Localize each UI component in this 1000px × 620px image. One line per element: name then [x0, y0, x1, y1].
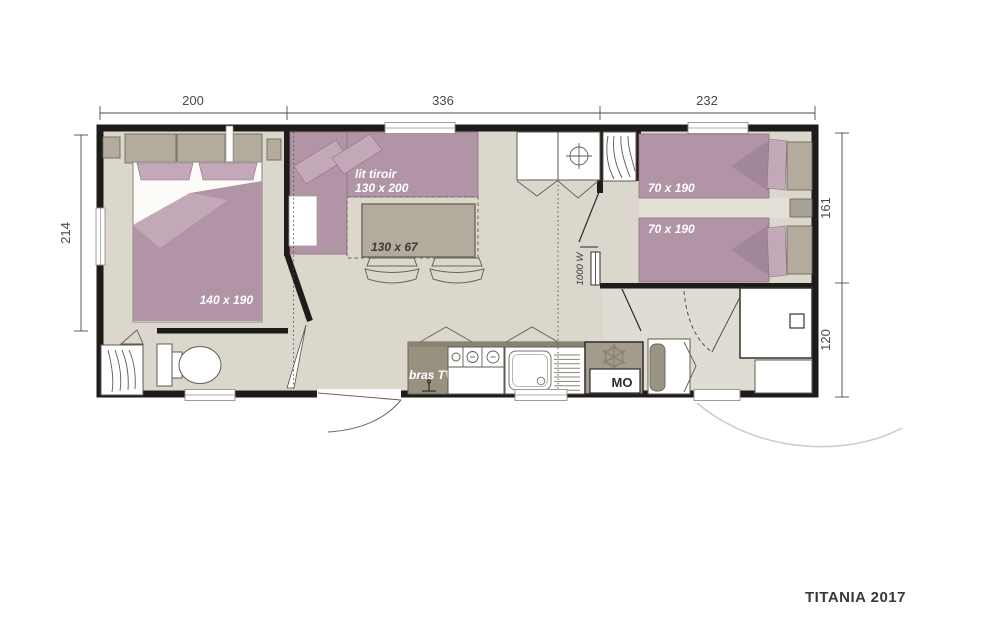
- nightstand: [790, 199, 812, 217]
- beds-divider: [639, 198, 791, 218]
- window: [96, 208, 105, 265]
- dining-table: 130 x 67: [362, 204, 475, 257]
- exterior-swoosh: [697, 403, 902, 447]
- dim-top-1: 200: [182, 93, 204, 108]
- dim-right-1: 161: [818, 197, 833, 219]
- heater-power-label: 1000 W: [575, 252, 586, 286]
- window: [515, 390, 567, 401]
- model-title: TITANIA 2017: [805, 589, 906, 606]
- twin-bed-bottom-label: 70 x 190: [648, 222, 695, 236]
- entry-door-opening: [694, 390, 740, 401]
- window: [688, 123, 748, 134]
- table-size-label: 130 x 67: [371, 240, 419, 254]
- hall-cabinet: [755, 360, 812, 393]
- dim-right-2: 120: [818, 329, 833, 351]
- double-bed: 140 x 190: [133, 162, 262, 322]
- microwave-label: MO: [612, 375, 633, 390]
- sink-icon: [505, 347, 585, 394]
- twin-bed-top-label: 70 x 190: [648, 181, 695, 195]
- window: [185, 390, 235, 401]
- dim-top-3: 232: [696, 93, 718, 108]
- floorplan: 200 336 232 214 161 120: [0, 0, 1000, 620]
- overhead-cabinets: [103, 134, 281, 163]
- window: [385, 123, 455, 134]
- sofa-label-1: lit tiroir: [355, 167, 398, 181]
- main-door-swing-arc: [328, 400, 401, 432]
- dim-left: 214: [58, 222, 73, 244]
- wall-vent: [226, 126, 233, 163]
- fridge: MO: [585, 342, 643, 394]
- clothes-rail-icon: [603, 132, 636, 181]
- tv-bracket-label: bras TV: [409, 368, 454, 382]
- tall-cabinet: [648, 339, 696, 394]
- shower-cabinet: [740, 288, 812, 358]
- hob-burners-icon: [448, 347, 504, 367]
- main-door: [317, 389, 401, 432]
- floorplan-svg: 200 336 232 214 161 120: [0, 0, 1000, 620]
- dim-top-2: 336: [432, 93, 454, 108]
- toilet-icon: [157, 344, 221, 386]
- sofa-label-2: 130 x 200: [355, 181, 409, 195]
- shower-unit: [517, 132, 558, 180]
- hob-cabinet: [448, 367, 504, 394]
- master-bed-size-label: 140 x 190: [200, 293, 254, 307]
